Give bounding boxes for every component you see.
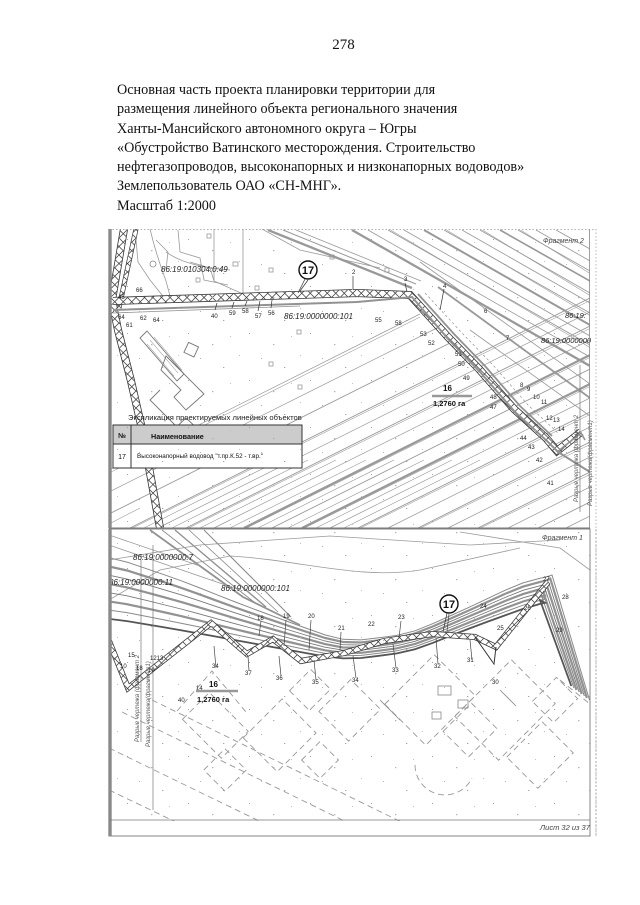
svg-text:Лист 32 из 37: Лист 32 из 37 — [539, 823, 591, 832]
